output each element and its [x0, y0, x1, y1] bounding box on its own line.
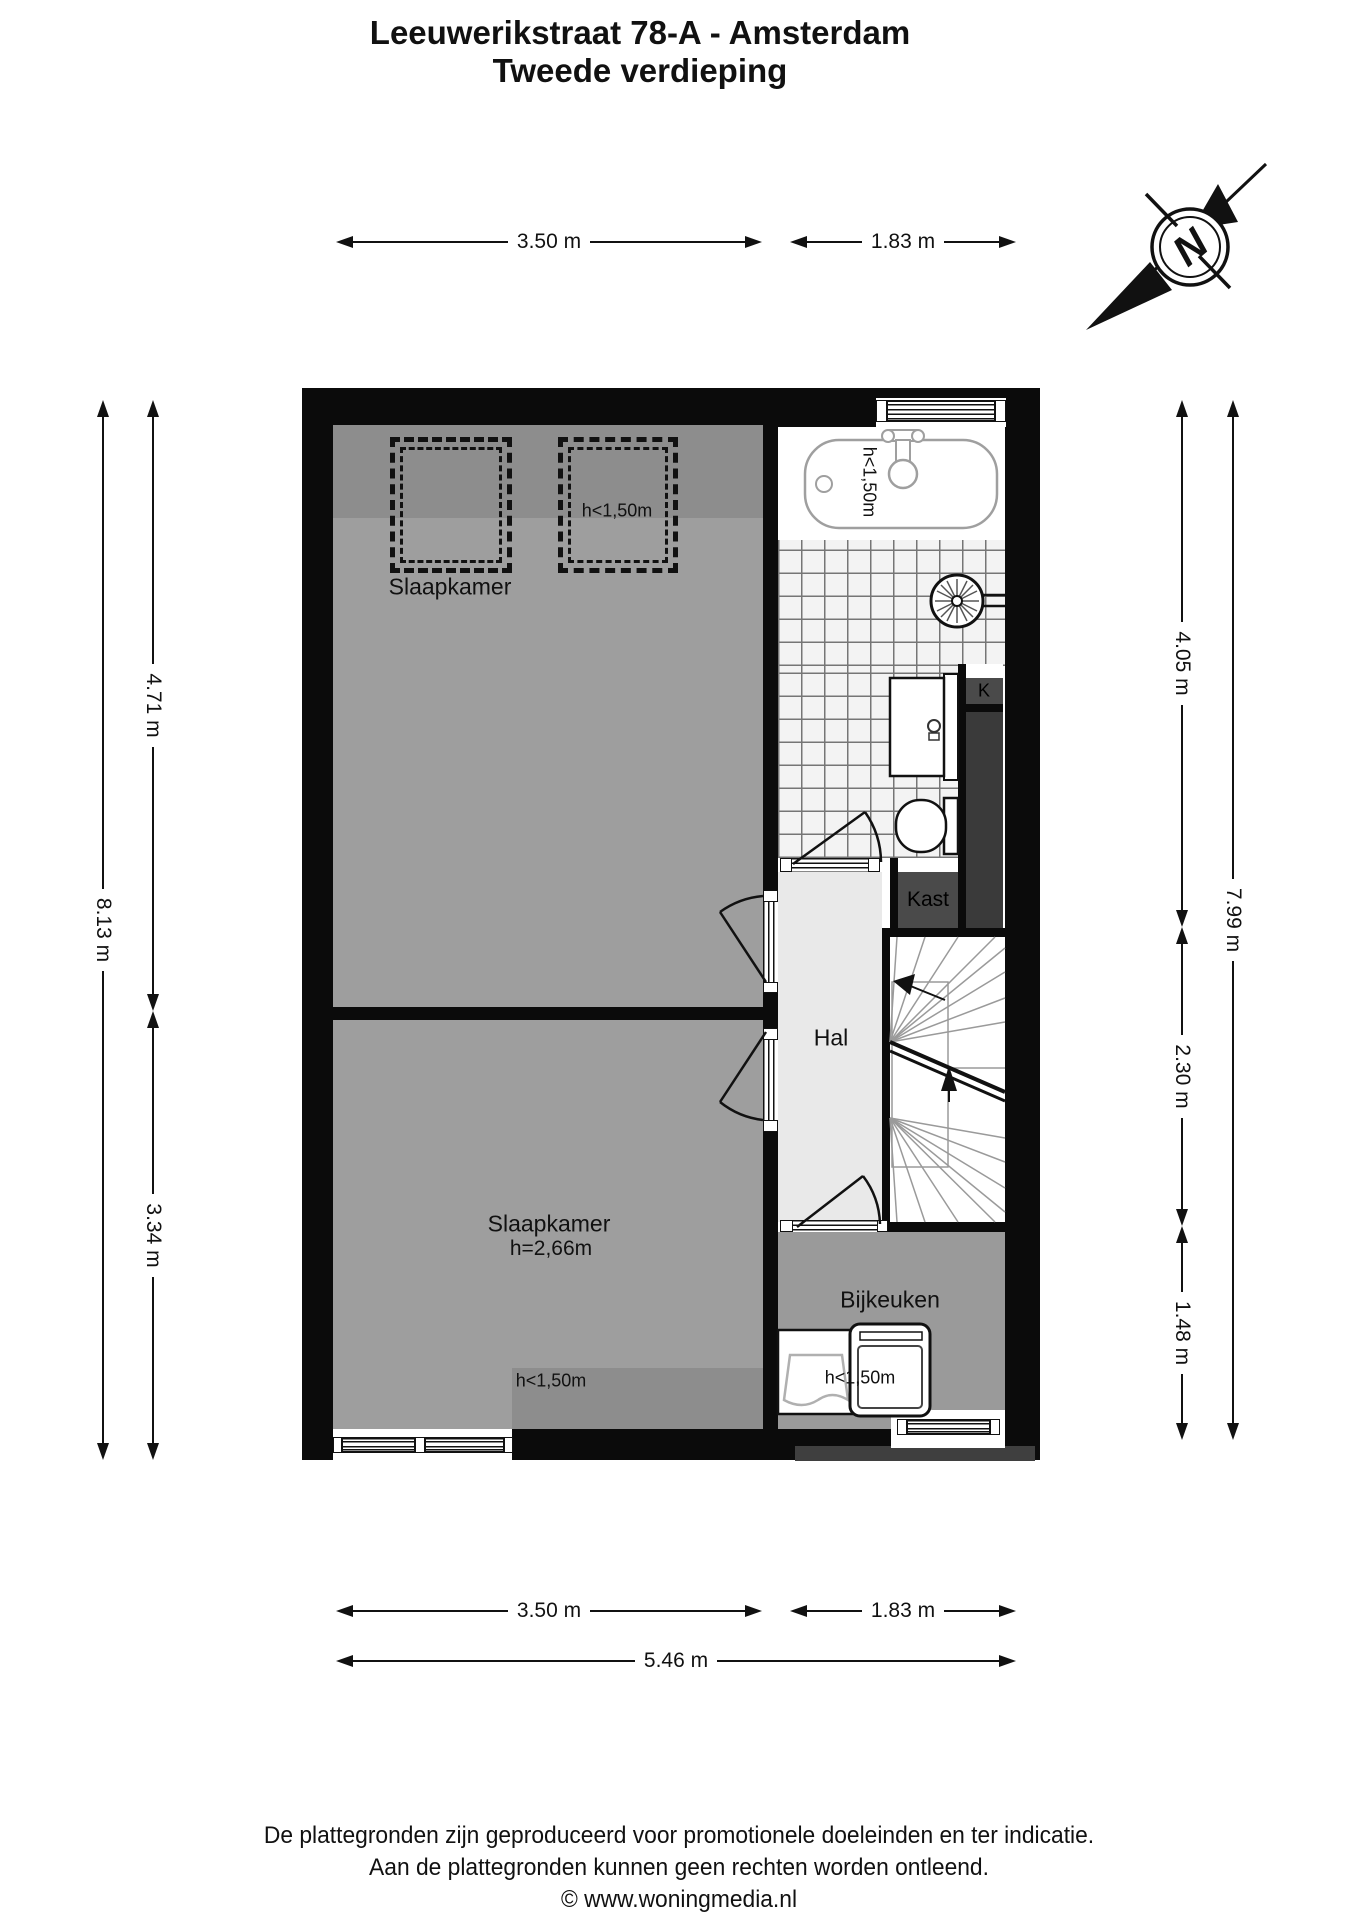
toilet-icon	[896, 798, 958, 854]
dimension-label: 3.34 m	[141, 1203, 165, 1267]
arrowhead	[147, 994, 159, 1011]
dimension-top-right: 1.83 m	[790, 229, 1016, 255]
door-swing-utility	[797, 1176, 880, 1227]
dimension-left-upper: 4.71 m	[140, 400, 166, 1011]
arrowhead	[336, 1655, 353, 1667]
arrowhead	[999, 1605, 1016, 1617]
arrowhead	[745, 1605, 762, 1617]
room-label-kast: Kast	[907, 888, 949, 912]
dimension-label: 4.71 m	[141, 673, 165, 737]
arrowhead	[1176, 1423, 1188, 1440]
dimension-bottom-left: 3.50 m	[336, 1598, 762, 1624]
dimension-right-total: 7.99 m	[1220, 400, 1246, 1440]
arrowhead	[1176, 400, 1188, 417]
footer-disclaimer-line2: Aan de plattegronden kunnen geen rechten…	[369, 1854, 989, 1882]
dimension-label: 1.48 m	[1170, 1301, 1194, 1365]
arrowhead	[1176, 927, 1188, 944]
dimension-left-lower: 3.34 m	[140, 1011, 166, 1460]
bathtub-icon	[805, 430, 997, 528]
arrowhead	[147, 1443, 159, 1460]
dimension-label: 3.50 m	[517, 1599, 581, 1623]
dimension-label: 4.05 m	[1170, 631, 1194, 695]
door-swing-bathroom	[793, 812, 881, 864]
arrowhead	[336, 1605, 353, 1617]
arrowhead	[999, 1655, 1016, 1667]
footer-disclaimer-line1: De plattegronden zijn geproduceerd voor …	[264, 1822, 1094, 1850]
arrowhead	[1227, 400, 1239, 417]
arrowhead	[1176, 1209, 1188, 1226]
dimension-right-middle: 2.30 m	[1169, 927, 1195, 1226]
arrowhead	[790, 236, 807, 248]
dimension-left-total: 8.13 m	[90, 400, 116, 1460]
door-swing-bedroom-bottom	[720, 1032, 766, 1120]
arrowhead	[97, 1443, 109, 1460]
dimension-label: 1.83 m	[871, 1599, 935, 1623]
arrowhead	[336, 236, 353, 248]
door-swing-bedroom-top	[720, 896, 766, 982]
room-label-k: K	[978, 681, 990, 702]
arrowhead	[1176, 1226, 1188, 1243]
note-skylight-height: h<1,50m	[582, 501, 653, 522]
dimension-right-lower: 1.48 m	[1169, 1226, 1195, 1440]
arrowhead	[147, 1011, 159, 1028]
floorplan-page: Leeuwerikstraat 78-A - Amsterdam Tweede …	[0, 0, 1358, 1920]
arrowhead	[745, 236, 762, 248]
sink-icon	[890, 674, 958, 780]
room-label-hall: Hal	[814, 1025, 849, 1052]
room-label-utility: Bijkeuken	[840, 1287, 940, 1314]
dimension-label: 7.99 m	[1221, 888, 1245, 952]
fixtures-overlay: N	[0, 0, 1358, 1920]
arrowhead	[1176, 910, 1188, 927]
arrowhead	[1227, 1423, 1239, 1440]
arrowhead	[790, 1605, 807, 1617]
note-low-ceiling-bedroom: h<1,50m	[516, 1371, 587, 1392]
stairs-up-arrow	[893, 974, 915, 995]
dimension-label: 8.13 m	[91, 898, 115, 962]
arrowhead	[999, 236, 1016, 248]
arrowhead	[147, 400, 159, 417]
room-label-bedroom-top: Slaapkamer	[389, 574, 512, 601]
dimension-bottom-total: 5.46 m	[336, 1648, 1016, 1674]
dimension-label: 3.50 m	[517, 230, 581, 254]
arrowhead	[97, 400, 109, 417]
dimension-label: 5.46 m	[644, 1649, 708, 1673]
footer-copyright: © www.woningmedia.nl	[561, 1886, 797, 1914]
stairs	[890, 937, 1005, 1222]
note-low-ceiling-bath: h<1,50m	[859, 447, 880, 518]
note-low-ceiling-utility: h<1,50m	[825, 1368, 896, 1389]
room-label-bedroom-bottom: Slaapkamer	[488, 1211, 611, 1238]
dimension-top-left: 3.50 m	[336, 229, 762, 255]
dimension-right-upper: 4.05 m	[1169, 400, 1195, 927]
fan-icon	[931, 575, 1005, 627]
dimension-label: 1.83 m	[871, 230, 935, 254]
compass-icon: N	[1086, 164, 1266, 330]
dimension-bottom-right: 1.83 m	[790, 1598, 1016, 1624]
note-ceiling-height: h=2,66m	[510, 1237, 592, 1261]
dimension-label: 2.30 m	[1170, 1044, 1194, 1108]
